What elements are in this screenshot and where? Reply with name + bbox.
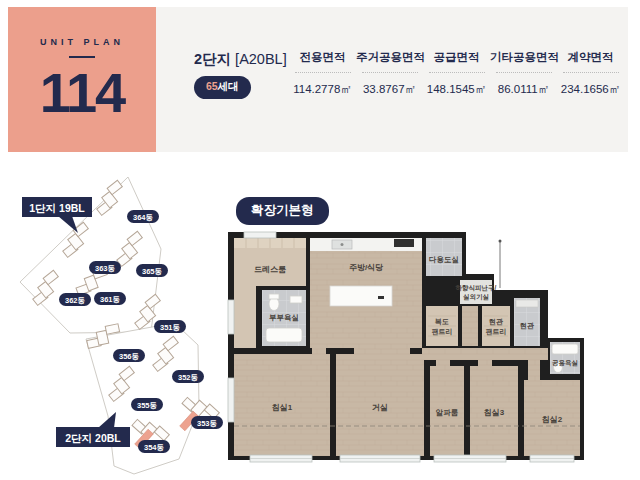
area-column-supply: 공급면적 148.1545㎡ bbox=[423, 50, 490, 97]
label-master-bathroom: 부부욕실 bbox=[269, 313, 299, 322]
building-pill-361: 361동 bbox=[94, 292, 126, 305]
area-column-value: 114.2778㎡ bbox=[289, 82, 356, 97]
building-pill-label: 353동 bbox=[197, 419, 218, 428]
building-pill-365: 365동 bbox=[136, 264, 168, 277]
entrance-shoe-cabinet bbox=[516, 300, 538, 307]
dotted-divider bbox=[362, 72, 418, 73]
label-alpha-room: 알파룸 bbox=[436, 408, 459, 417]
corridor bbox=[462, 306, 478, 346]
building-pill-354: 354동 bbox=[138, 440, 170, 453]
dress-wardrobe-strip bbox=[234, 286, 256, 348]
households-count: 65 bbox=[206, 80, 218, 92]
door-bedroom3 bbox=[478, 358, 492, 368]
complex-block: 2단지 [A20BL] 65세대 bbox=[194, 50, 289, 99]
building-pill-label: 365동 bbox=[142, 267, 163, 276]
area-column-value: 234.1656㎡ bbox=[557, 82, 624, 97]
area-column-exclusive: 전용면적 114.2778㎡ bbox=[289, 50, 356, 97]
label-entry-pantry: 현관 bbox=[489, 318, 503, 326]
label-utility-room: 다용도실 bbox=[429, 255, 459, 264]
master-bath-sink bbox=[290, 296, 302, 303]
households-unit: 세대 bbox=[218, 80, 239, 92]
label-escape-hatch: 실외기실 bbox=[463, 293, 489, 301]
site-plan-map: 364동 363동 365동 362동 361동 351동 356동 352동 … bbox=[8, 175, 230, 480]
dotted-divider bbox=[496, 72, 552, 73]
label-bedroom3: 침실3 bbox=[484, 408, 505, 417]
label-hall-pantry: 팬트리 bbox=[432, 328, 453, 336]
dotted-divider bbox=[563, 72, 619, 73]
building-pill-352: 352동 bbox=[172, 370, 204, 383]
complex-name: 2단지 bbox=[194, 51, 231, 67]
building-pill-label: 362동 bbox=[65, 296, 86, 305]
window bbox=[228, 300, 234, 334]
building-pill-353: 353동 bbox=[191, 416, 223, 429]
area-column-value: 86.0111㎡ bbox=[490, 82, 557, 97]
common-bath-tub bbox=[552, 344, 578, 354]
area-summary: 2단지 [A20BL] 65세대 전용면적 114.2778㎡ 주거공용면적 3… bbox=[194, 50, 624, 99]
master-bath-tank bbox=[269, 294, 279, 299]
building-pill-364: 364동 bbox=[127, 210, 159, 223]
building-pill-label: 355동 bbox=[137, 401, 158, 410]
area-column-value: 33.8767㎡ bbox=[356, 82, 423, 97]
label-kitchen-dining: 주방/식당 bbox=[349, 263, 384, 272]
label-escape-hatch: 하향식피난구/ bbox=[456, 284, 497, 292]
building-pill-label: 356동 bbox=[119, 352, 140, 361]
unit-plan-card: UNIT PLAN 114 bbox=[8, 7, 156, 152]
area-column-label: 기타공용면적 bbox=[490, 50, 557, 65]
master-bath-toilet bbox=[269, 298, 279, 311]
unit-plan-eyebrow: UNIT PLAN bbox=[8, 37, 156, 47]
area-column-label: 전용면적 bbox=[289, 50, 356, 65]
building-pill-362: 362동 bbox=[59, 293, 91, 306]
area-column-contract: 계약면적 234.1656㎡ bbox=[557, 50, 624, 97]
area-column-value: 148.1545㎡ bbox=[423, 82, 490, 97]
unit-plan-page: UNIT PLAN 114 2단지 [A20BL] 65세대 전용면적 114.… bbox=[0, 0, 640, 480]
complex-title: 2단지 [A20BL] bbox=[194, 50, 289, 69]
building-pill-363: 363동 bbox=[89, 261, 121, 274]
building-pill-label: 364동 bbox=[133, 213, 154, 222]
opening-living bbox=[354, 344, 410, 356]
building-pill-351: 351동 bbox=[154, 320, 186, 333]
floor-plan: 드레스룸 주방/식당 다용도실 하향식피난구/ 실외기실 부부욕실 복도 팬트리… bbox=[226, 228, 586, 468]
building-pill-label: 352동 bbox=[178, 373, 199, 382]
block-code: [A20BL] bbox=[235, 51, 287, 67]
area-column-label: 공급면적 bbox=[423, 50, 490, 65]
building-pill-label: 363동 bbox=[95, 264, 116, 273]
households-badge: 65세대 bbox=[194, 76, 251, 99]
label-entry-pantry: 팬트리 bbox=[486, 328, 507, 336]
door-bedroom1 bbox=[312, 346, 326, 356]
label-entrance: 현관 bbox=[520, 322, 534, 330]
unit-number: 114 bbox=[8, 65, 156, 121]
label-bedroom2: 침실2 bbox=[542, 415, 563, 424]
door-bedroom2 bbox=[528, 360, 540, 380]
area-columns: 전용면적 114.2778㎡ 주거공용면적 33.8767㎡ 공급면적 148.… bbox=[289, 50, 624, 97]
dotted-divider bbox=[429, 72, 485, 73]
label-living-room: 거실 bbox=[372, 403, 388, 412]
complex1-label: 1단지 19BL bbox=[29, 202, 85, 214]
window bbox=[244, 232, 276, 238]
building-pill-label: 354동 bbox=[144, 443, 165, 452]
label-hall-pantry: 복도 bbox=[435, 318, 449, 326]
building-pill-356: 356동 bbox=[113, 349, 145, 362]
unit-plan-divider bbox=[69, 56, 95, 58]
label-dress-room: 드레스룸 bbox=[254, 265, 286, 274]
area-column-label: 주거공용면적 bbox=[356, 50, 423, 65]
area-column-other-common: 기타공용면적 86.0111㎡ bbox=[490, 50, 557, 97]
building-pill-355: 355동 bbox=[131, 398, 163, 411]
area-column-residential-common: 주거공용면적 33.8767㎡ bbox=[356, 50, 423, 97]
label-common-bathroom: 공용욕실 bbox=[552, 359, 578, 367]
window bbox=[228, 378, 234, 422]
area-column-label: 계약면적 bbox=[557, 50, 624, 65]
master-bath-tub bbox=[266, 328, 302, 342]
building-pill-label: 351동 bbox=[160, 323, 181, 332]
kitchen-stove bbox=[394, 239, 414, 247]
building-pill-label: 361동 bbox=[100, 295, 121, 304]
floor-plan-type-tag: 확장기본형 bbox=[236, 197, 329, 225]
door-alpha bbox=[436, 358, 450, 368]
complex2-label: 2단지 20BL bbox=[65, 432, 121, 444]
dotted-divider bbox=[295, 72, 351, 73]
label-bedroom1: 침실1 bbox=[272, 403, 293, 412]
